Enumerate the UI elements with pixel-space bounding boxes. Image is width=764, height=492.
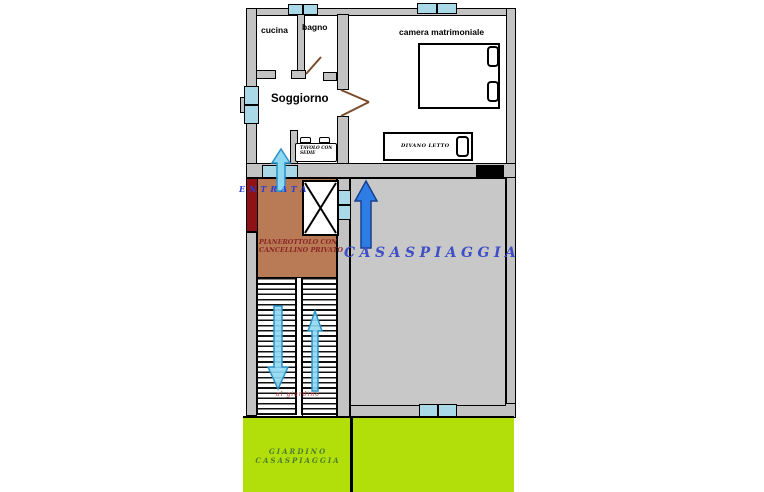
dining-table-label-line2: SEDIE: [300, 151, 336, 156]
top-wall: [246, 8, 516, 16]
dining-table: TAVOLO CON SEDIE: [295, 143, 337, 162]
chair-icon: [319, 137, 330, 143]
landing-label: PIANEROTTOLO CON CANCELLINO PRIVATO: [259, 238, 343, 254]
garden-label-line2: CASASPIAGGIA: [250, 456, 346, 465]
garden-label: GIARDINO CASASPIAGGIA: [250, 447, 346, 465]
terrace-floor: [350, 178, 506, 406]
bath-door-leaf: [306, 57, 321, 74]
sofa-bed-pillow: [456, 136, 469, 157]
bedroom-label: camera matrimoniale: [399, 27, 484, 37]
floor-plan: DIVANO LETTO TAVOLO CON SEDIE cucin: [0, 0, 764, 492]
under-kitchen-wall-a: [256, 70, 276, 79]
terrace-label: CASASPIAGGIA: [344, 245, 520, 261]
bath-label: bagno: [302, 22, 328, 32]
right-wall: [506, 8, 516, 418]
landing-label-line2: CANCELLINO PRIVATO: [259, 246, 343, 254]
bedroom-door-leaves: [341, 90, 369, 116]
landing-window: [338, 190, 351, 220]
living-room-window: [244, 86, 259, 124]
living-bedroom-wall-lower: [337, 116, 349, 164]
landing-label-line1: PIANEROTTOLO CON: [259, 238, 343, 246]
bedroom-window: [417, 3, 457, 14]
entrance-label: ENTRATA: [239, 184, 311, 194]
terrace-railing-window: [419, 404, 457, 417]
garden-divider-line: [350, 416, 353, 492]
kitchen-label: cucina: [261, 25, 288, 35]
living-bedroom-wall-upper: [337, 14, 349, 90]
bottom-wall-black-segment: [476, 165, 504, 177]
kitchen-window: [288, 4, 318, 15]
living-room-label: Soggiorno: [271, 93, 329, 105]
under-kitchen-wall-b: [291, 70, 306, 79]
under-bath-wall-c: [323, 72, 337, 81]
bed-pillow-bottom: [487, 81, 499, 102]
left-wall-lower: [246, 232, 257, 416]
entrance-door: [262, 165, 298, 178]
garden-label-line1: GIARDINO: [250, 447, 346, 456]
chair-icon: [300, 137, 311, 143]
stairs-note-label: al giardino: [264, 391, 332, 398]
bed-pillow-top: [487, 46, 499, 67]
sofa-bed-label: DIVANO LETTO: [401, 143, 449, 149]
